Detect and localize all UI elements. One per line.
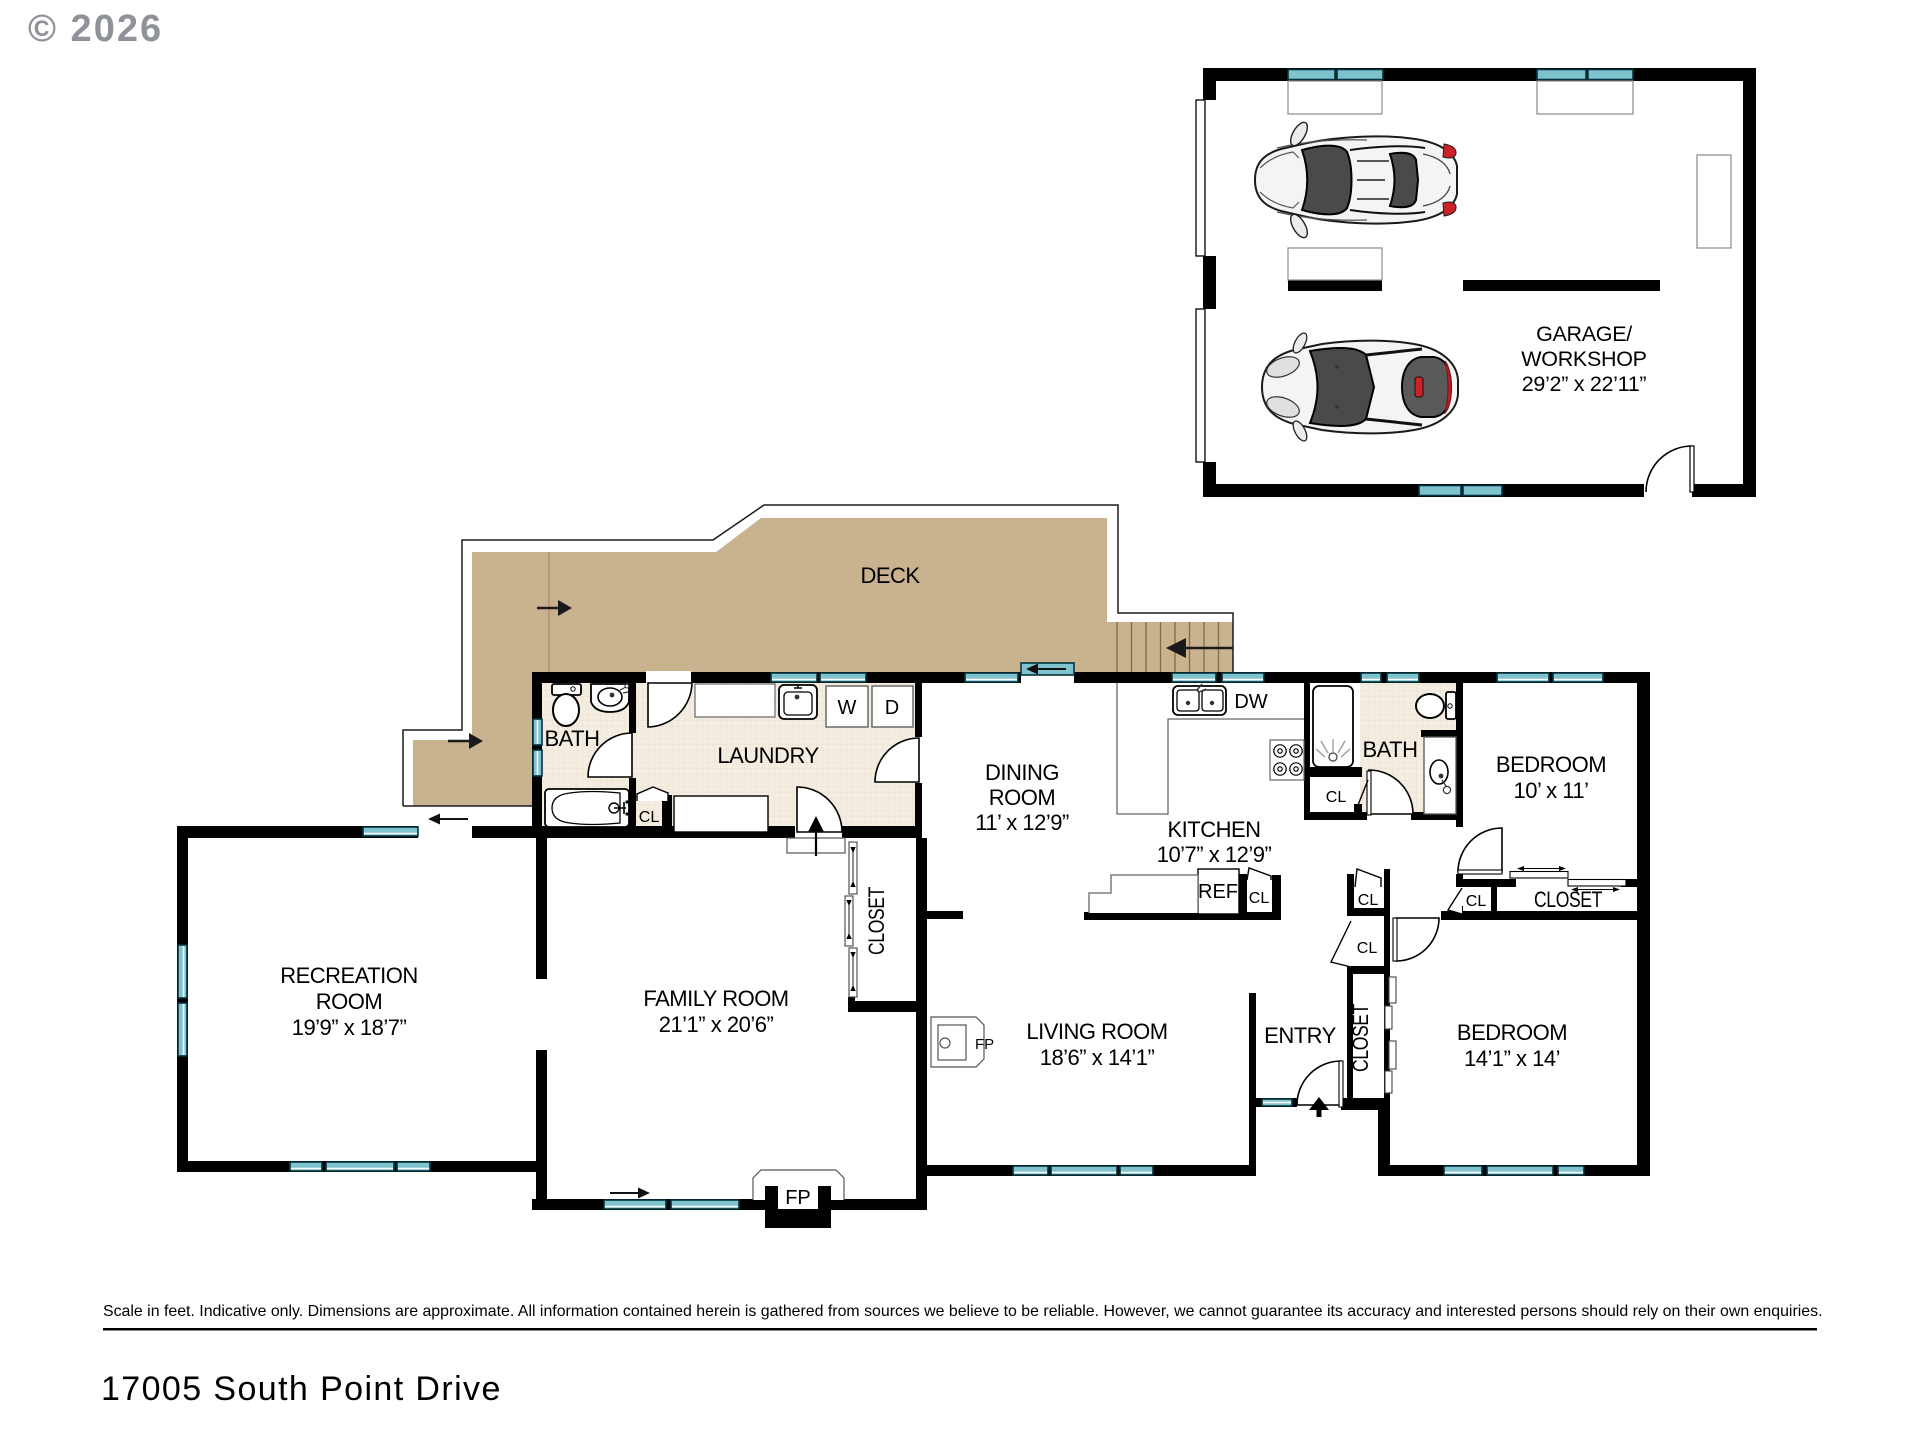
svg-text:DW: DW [1234, 691, 1267, 713]
svg-text:BEDROOM: BEDROOM [1457, 1020, 1567, 1045]
svg-text:10’7” x 12’9”: 10’7” x 12’9” [1157, 842, 1272, 867]
svg-text:CL: CL [1466, 893, 1487, 910]
svg-text:FAMILY ROOM: FAMILY ROOM [643, 986, 788, 1011]
svg-text:CL: CL [639, 809, 660, 826]
svg-text:Scale in feet. Indicative only: Scale in feet. Indicative only. Dimensio… [103, 1303, 1823, 1320]
svg-text:CL: CL [1357, 940, 1378, 957]
svg-text:BATH: BATH [1362, 737, 1417, 762]
svg-text:ROOM: ROOM [989, 785, 1055, 810]
svg-text:11’ x 12’9”: 11’ x 12’9” [975, 810, 1069, 835]
svg-text:LIVING ROOM: LIVING ROOM [1026, 1019, 1167, 1044]
svg-text:FP: FP [785, 1187, 811, 1209]
svg-text:FP: FP [975, 1036, 994, 1053]
svg-text:CL: CL [1358, 892, 1379, 909]
svg-text:LAUNDRY: LAUNDRY [717, 743, 819, 768]
svg-text:10’ x 11’: 10’ x 11’ [1514, 778, 1589, 803]
svg-text:17005 South Point Drive: 17005 South Point Drive [101, 1370, 502, 1408]
svg-text:W: W [838, 697, 857, 719]
svg-text:CL: CL [1249, 890, 1270, 907]
svg-text:CLOSET: CLOSET [864, 887, 889, 955]
svg-text:21’1” x 20’6”: 21’1” x 20’6” [659, 1012, 774, 1037]
svg-text:19’9” x 18’7”: 19’9” x 18’7” [292, 1015, 407, 1040]
svg-text:29’2” x 22’11”: 29’2” x 22’11” [1522, 372, 1647, 396]
svg-text:KITCHEN: KITCHEN [1167, 817, 1260, 842]
svg-text:REF: REF [1198, 881, 1238, 903]
svg-text:BEDROOM: BEDROOM [1496, 752, 1606, 777]
svg-text:ENTRY: ENTRY [1264, 1023, 1336, 1048]
svg-text:DECK: DECK [860, 563, 920, 588]
svg-text:WORKSHOP: WORKSHOP [1521, 347, 1646, 371]
svg-text:© 2026: © 2026 [28, 8, 163, 50]
svg-text:GARAGE/: GARAGE/ [1536, 322, 1632, 346]
svg-text:CL: CL [1326, 789, 1347, 806]
svg-text:14’1” x 14’: 14’1” x 14’ [1464, 1046, 1560, 1071]
svg-text:BATH: BATH [544, 726, 599, 751]
svg-text:D: D [885, 697, 899, 719]
svg-text:DINING: DINING [985, 760, 1059, 785]
svg-text:ROOM: ROOM [316, 989, 382, 1014]
svg-text:RECREATION: RECREATION [280, 963, 418, 988]
svg-text:CLOSET: CLOSET [1534, 887, 1602, 912]
svg-text:CLOSET: CLOSET [1348, 1004, 1373, 1072]
svg-text:18’6” x 14’1”: 18’6” x 14’1” [1040, 1045, 1155, 1070]
